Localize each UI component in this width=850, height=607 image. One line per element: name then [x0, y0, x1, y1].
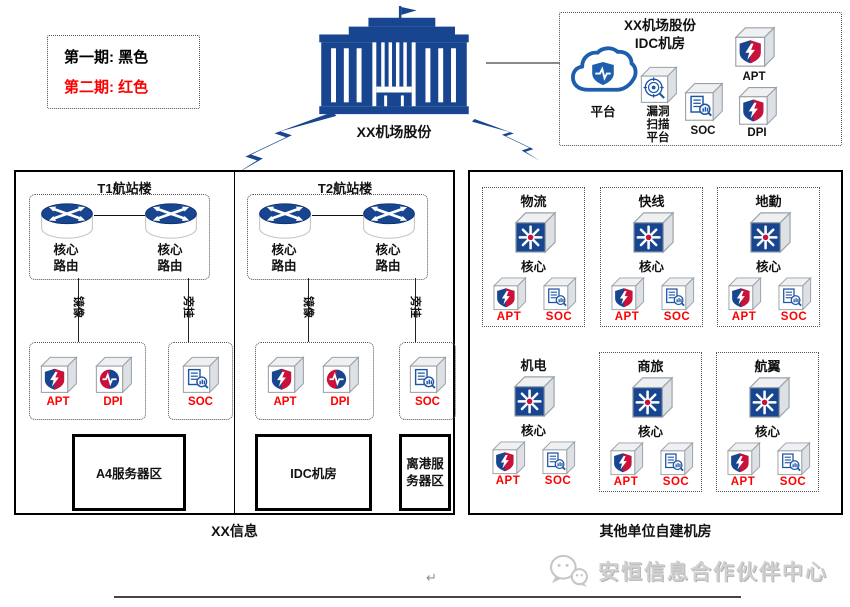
- soc-cube-icon: [539, 438, 577, 476]
- t2-router2-icon: [360, 199, 418, 243]
- legend-box: 第一期: 黑色 第二期: 红色: [47, 35, 200, 109]
- hq-idc-connector-line: [486, 62, 560, 64]
- soc-cube-icon: [406, 353, 448, 395]
- left-zone-caption: XX信息: [14, 521, 455, 541]
- soc-label: SOC: [652, 476, 700, 488]
- t1-router1-label: 核心 路由: [34, 243, 98, 274]
- dpi-cube-icon: [319, 353, 361, 395]
- t2-mirror-line-label: 镜像: [301, 286, 317, 328]
- section-jidian: 机电 核心 APT SOC: [482, 352, 585, 492]
- soc-cube-icon: [657, 439, 695, 477]
- core-switch-icon: [745, 373, 792, 420]
- left-zone-box: T1航站楼 核心 路由 核心 路由 镜像 旁挂 APT DPI SOC A4服务…: [14, 170, 455, 515]
- lightning-bolt-right-icon: [468, 108, 540, 172]
- t1-router-box: 核心 路由 核心 路由: [29, 194, 210, 280]
- dpi-label: DPI: [735, 127, 779, 139]
- t1-router-link-line: [94, 215, 146, 216]
- soc-label: SOC: [678, 125, 728, 137]
- t2-router1-label: 核心 路由: [252, 243, 316, 274]
- soc-cube-icon: [540, 274, 578, 312]
- soc-cube-icon: [681, 79, 725, 123]
- diagram-canvas: 第一期: 黑色 第二期: 红色 XX机场股份 XX机场股份 IDC机房 平台 漏…: [0, 0, 850, 607]
- t1-apt-label: APT: [37, 396, 79, 408]
- core-label: 核心: [482, 420, 585, 439]
- apt-label: APT: [484, 475, 532, 487]
- cloud-platform-label: 平台: [568, 101, 638, 120]
- t1-router2-label: 核心 路由: [138, 243, 202, 274]
- soc-label: SOC: [769, 476, 817, 488]
- soc-cube-icon: [775, 274, 813, 312]
- paragraph-mark: ↵: [426, 570, 437, 586]
- apt-cube-icon: [264, 353, 306, 395]
- core-label: 核心: [600, 421, 701, 440]
- core-label: 核心: [483, 256, 584, 275]
- soc-label: SOC: [535, 311, 583, 323]
- cloud-platform-icon: [568, 45, 638, 99]
- apt-cube-icon: [489, 438, 527, 476]
- t2-bypass-line-label: 旁挂: [408, 286, 424, 328]
- t1-soc-box: SOC: [168, 342, 233, 420]
- t1-mirror-line-label: 镜像: [71, 286, 87, 328]
- soc-label: SOC: [653, 311, 701, 323]
- vuln-scanner-icon: [637, 63, 679, 105]
- apt-cube-icon: [731, 23, 777, 69]
- t2-router-link-line: [312, 215, 364, 216]
- section-kuaixian: 快线 核心 APT SOC: [600, 187, 703, 327]
- core-label: 核心: [718, 256, 819, 275]
- watermark-brand-text: 安恒信息合作伙伴中心: [598, 556, 828, 586]
- dpi-cube-icon: [735, 83, 779, 127]
- t2-router-box: 核心 路由 核心 路由: [247, 194, 428, 280]
- t2-dpi-label: DPI: [319, 396, 361, 408]
- t2-apt-label: APT: [264, 396, 306, 408]
- terminal-divider-line: [234, 172, 235, 513]
- t1-dpi-label: DPI: [92, 396, 134, 408]
- core-switch-icon: [511, 208, 558, 255]
- t1-router2-icon: [142, 199, 200, 243]
- core-label: 核心: [717, 421, 818, 440]
- apt-cube-icon: [490, 274, 528, 312]
- apt-cube-icon: [724, 439, 762, 477]
- apt-label: APT: [720, 311, 768, 323]
- t2-router2-label: 核心 路由: [356, 243, 420, 274]
- lightning-bolt-left-icon: [233, 112, 345, 174]
- right-zone-caption: 其他单位自建机房: [468, 521, 843, 541]
- apt-label: APT: [731, 71, 777, 83]
- t2-apt-dpi-box: APT DPI: [255, 342, 374, 420]
- apt-cube-icon: [607, 439, 645, 477]
- footer-divider-line: [114, 596, 741, 598]
- apt-cube-icon: [608, 274, 646, 312]
- apt-cube-icon: [725, 274, 763, 312]
- t2-departure-server-box: 离港服 务器区: [399, 434, 451, 511]
- soc-label: SOC: [770, 311, 818, 323]
- legend-phase1: 第一期: 黑色: [64, 46, 199, 67]
- t1-server-area-box: A4服务器区: [72, 434, 186, 511]
- core-switch-icon: [510, 372, 557, 419]
- t2-soc-box: SOC: [399, 342, 456, 420]
- t2-router1-icon: [256, 199, 314, 243]
- right-zone-box: 物流 核心 APT SOC 快线 核心 APT SOC 地勤 核心 APT SO…: [468, 170, 843, 515]
- core-switch-icon: [628, 373, 675, 420]
- soc-cube-icon: [179, 353, 221, 395]
- idc-room-box: XX机场股份 IDC机房 平台 漏洞 扫描 平台 SOC APT DPI: [559, 12, 842, 146]
- apt-label: APT: [485, 311, 533, 323]
- dpi-cube-icon: [92, 353, 134, 395]
- section-diqin: 地勤 核心 APT SOC: [717, 187, 820, 327]
- legend-phase2: 第二期: 红色: [64, 76, 199, 97]
- apt-label: APT: [602, 476, 650, 488]
- t1-bypass-line-label: 旁挂: [181, 286, 197, 328]
- t1-router1-icon: [38, 199, 96, 243]
- apt-label: APT: [719, 476, 767, 488]
- soc-cube-icon: [774, 439, 812, 477]
- apt-cube-icon: [37, 353, 79, 395]
- wechat-icon: [548, 554, 590, 588]
- t1-soc-label: SOC: [169, 396, 232, 408]
- core-switch-icon: [629, 208, 676, 255]
- t2-soc-label: SOC: [400, 396, 455, 408]
- soc-cube-icon: [658, 274, 696, 312]
- section-wuliu: 物流 核心 APT SOC: [482, 187, 585, 327]
- t2-idc-room-box: IDC机房: [255, 434, 372, 511]
- core-label: 核心: [601, 256, 702, 275]
- soc-label: SOC: [534, 475, 582, 487]
- section-shanglv: 商旅 核心 APT SOC: [599, 352, 702, 492]
- core-switch-icon: [746, 208, 793, 255]
- section-hangyi: 航翼 核心 APT SOC: [716, 352, 819, 492]
- watermark-logo: 安恒信息合作伙伴中心: [548, 554, 828, 588]
- headquarters-building-icon: [302, 4, 486, 122]
- apt-label: APT: [603, 311, 651, 323]
- t1-apt-dpi-box: APT DPI: [29, 342, 146, 420]
